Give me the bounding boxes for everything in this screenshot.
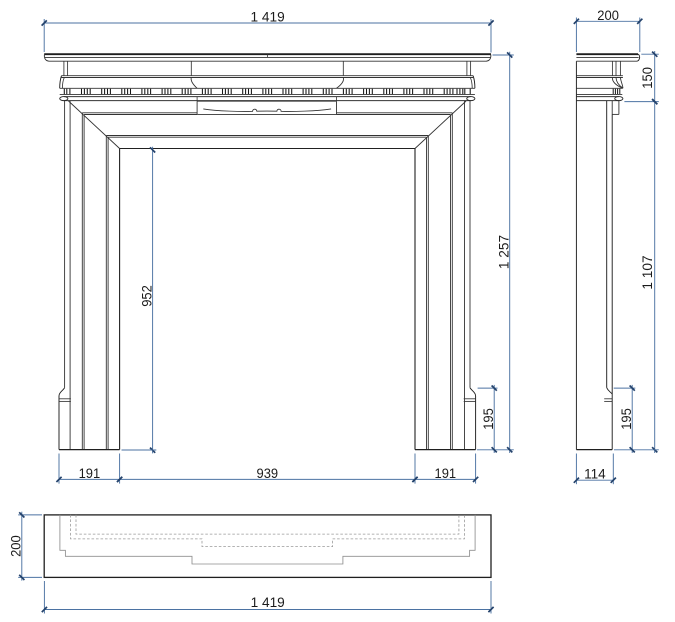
svg-text:1 107: 1 107 (640, 255, 656, 289)
svg-text:191: 191 (435, 466, 457, 482)
svg-text:200: 200 (8, 535, 24, 557)
svg-text:191: 191 (79, 466, 101, 482)
svg-text:150: 150 (640, 67, 656, 89)
svg-text:195: 195 (619, 408, 635, 430)
svg-text:939: 939 (257, 466, 279, 482)
svg-text:1 257: 1 257 (496, 235, 512, 269)
svg-text:952: 952 (139, 285, 155, 307)
svg-text:1 419: 1 419 (251, 9, 285, 25)
svg-text:1 419: 1 419 (251, 595, 285, 611)
svg-text:114: 114 (584, 467, 606, 483)
svg-text:195: 195 (481, 408, 497, 430)
svg-text:200: 200 (597, 8, 619, 24)
